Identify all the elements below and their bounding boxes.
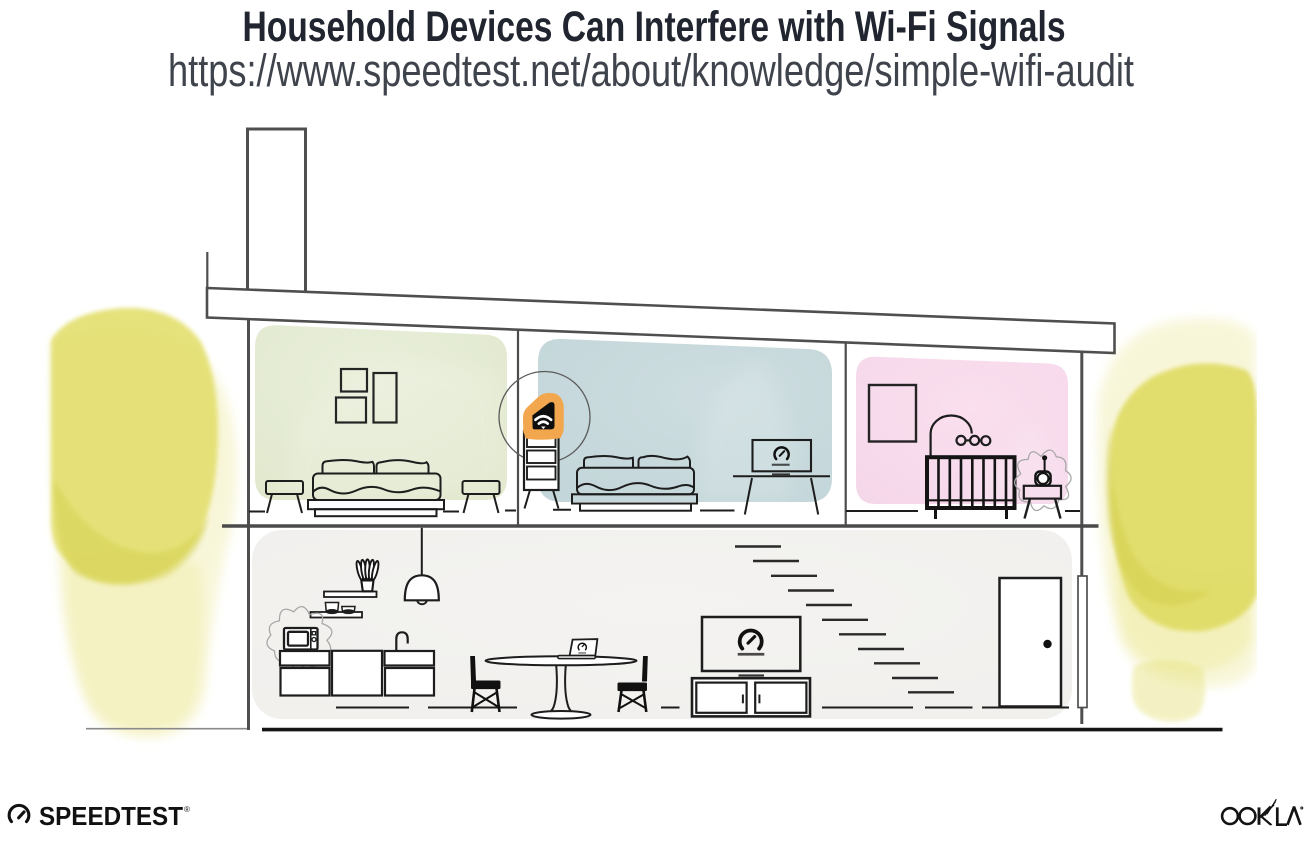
svg-text:®: ® [184,805,190,814]
svg-text:https://www.speedtest.net/abou: https://www.speedtest.net/about/knowledg… [168,45,1134,96]
svg-text:Household Devices Can Interfer: Household Devices Can Interfere with Wi-… [243,3,1066,51]
svg-text:SPEEDTEST: SPEEDTEST [39,803,183,831]
